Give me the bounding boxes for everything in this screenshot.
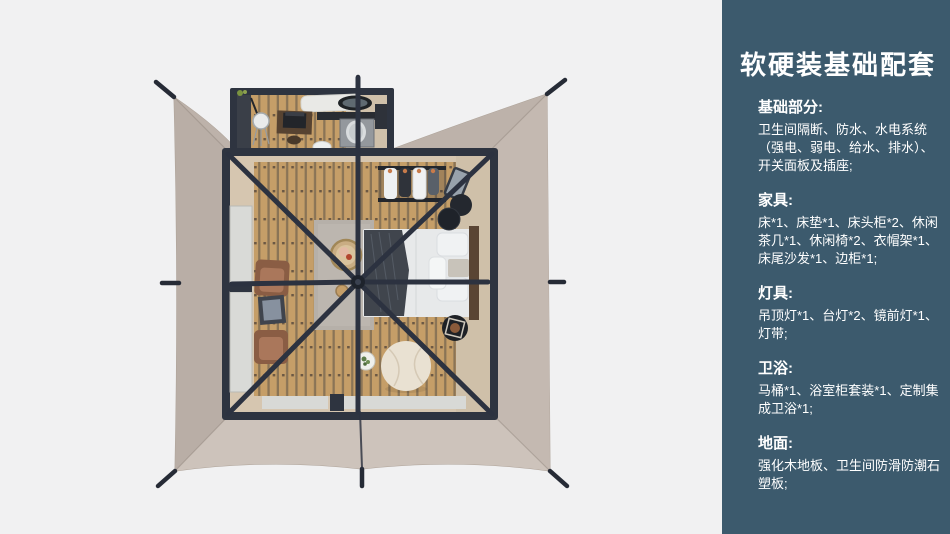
section-line: （强电、弱电、给水、排水）、 [758,139,940,157]
window-mullion [330,394,344,411]
vanity-mirror [338,96,372,111]
section-line: 茶几*1、休闲椅*2、衣帽架*1、 [758,232,940,250]
section-line: 床*1、床垫*1、床头柜*2、休闲 [758,214,940,232]
spec-section: 卫浴:马桶*1、浴室柜套装*1、定制集成卫浴*1; [740,359,940,418]
headboard [469,226,479,320]
window-panel-bottom-left [262,396,328,409]
spec-section: 灯具:吊顶灯*1、台灯*2、镜前灯*1、灯带; [740,284,940,343]
floor-mirror [258,295,286,325]
vanity-desk [277,110,313,134]
vanity-stool [287,136,301,145]
section-line: 强化木地板、卫生间防滑防潮石 [758,457,940,475]
section-heading: 家具: [758,191,940,211]
spec-section: 地面:强化木地板、卫生间防滑防潮石塑板; [740,434,940,493]
pillow [437,233,468,256]
tent-render-area [0,0,722,534]
spec-panel: 软硬装基础配套 基础部分:卫生间隔断、防水、水电系统（强电、弱电、给水、排水）、… [722,0,950,534]
spec-sections: 基础部分:卫生间隔断、防水、水电系统（强电、弱电、给水、排水）、开关面板及插座;… [740,98,940,493]
window-panel-left-lower [230,292,252,392]
bathroom-annex [230,88,394,156]
spec-section: 家具:床*1、床垫*1、床头柜*2、休闲茶几*1、休闲椅*2、衣帽架*1、床尾沙… [740,191,940,268]
section-heading: 基础部分: [758,98,940,118]
section-line: 塑板; [758,475,940,493]
rib-west [232,282,358,284]
clothes-rack [378,166,446,202]
section-line: 马桶*1、浴室柜套装*1、定制集 [758,382,940,400]
section-line: 卫生间隔断、防水、水电系统 [758,121,940,139]
spec-section: 基础部分:卫生间隔断、防水、水电系统（强电、弱电、给水、排水）、开关面板及插座; [740,98,940,175]
window-panel-left-upper [230,206,252,282]
section-line: 床尾沙发*1、边柜*1; [758,250,940,268]
section-heading: 地面: [758,434,940,454]
side-table [442,315,468,341]
page: 软硬装基础配套 基础部分:卫生间隔断、防水、水电系统（强电、弱电、给水、排水）、… [0,0,950,534]
window-panel-bottom-right [344,396,466,409]
armchair-upper [254,259,290,297]
tent-top-view [0,0,722,534]
bathroom-cabinet [375,104,387,129]
section-heading: 卫浴: [758,359,940,379]
section-line: 吊顶灯*1、台灯*2、镜前灯*1、 [758,307,940,325]
section-line: 开关面板及插座; [758,157,940,175]
section-line: 灯带; [758,325,940,343]
section-line: 成卫浴*1; [758,400,940,418]
bathroom-partition-wall [237,95,251,149]
section-heading: 灯具: [758,284,940,304]
panel-title: 软硬装基础配套 [740,50,940,80]
folded-blanket [448,259,469,277]
pouf-stool [438,208,460,230]
